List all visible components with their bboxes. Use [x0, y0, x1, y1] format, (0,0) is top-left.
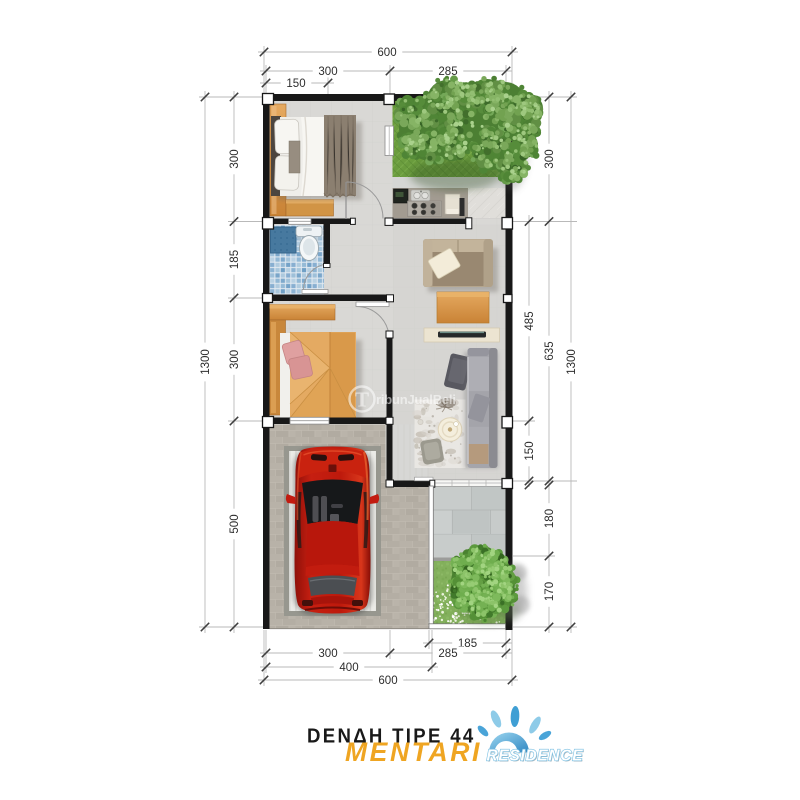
svg-text:300: 300 — [318, 66, 337, 78]
svg-text:ribunJualBeli: ribunJualBeli — [376, 392, 456, 407]
svg-text:400: 400 — [339, 662, 358, 674]
svg-text:485: 485 — [524, 311, 536, 330]
svg-text:600: 600 — [378, 675, 397, 687]
svg-text:635: 635 — [544, 341, 556, 360]
svg-text:500: 500 — [229, 514, 241, 533]
svg-text:170: 170 — [544, 582, 556, 601]
svg-text:300: 300 — [229, 149, 241, 168]
svg-text:150: 150 — [286, 78, 305, 90]
svg-text:600: 600 — [377, 47, 396, 59]
svg-text:RESIDENCE: RESIDENCE — [487, 748, 584, 765]
svg-text:285: 285 — [438, 648, 457, 660]
svg-text:180: 180 — [544, 509, 556, 528]
svg-text:300: 300 — [544, 149, 556, 168]
svg-text:300: 300 — [229, 350, 241, 369]
svg-text:T: T — [355, 388, 369, 412]
svg-text:1300: 1300 — [566, 349, 578, 375]
svg-text:1300: 1300 — [200, 349, 212, 375]
svg-text:300: 300 — [318, 648, 337, 660]
svg-text:150: 150 — [524, 441, 536, 460]
svg-text:MENTARI: MENTARI — [345, 737, 482, 767]
svg-text:185: 185 — [229, 250, 241, 269]
